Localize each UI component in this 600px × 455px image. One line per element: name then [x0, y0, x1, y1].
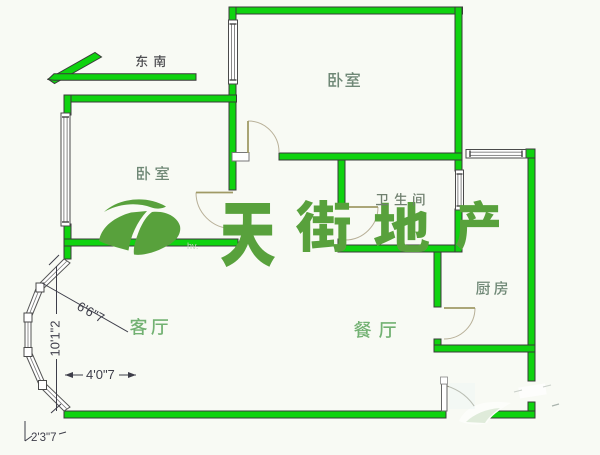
svg-text:hv.: hv.	[187, 241, 198, 251]
svg-text:2'3"7: 2'3"7	[31, 432, 56, 444]
svg-text:10'1"2: 10'1"2	[48, 320, 63, 356]
svg-text:4'0"7: 4'0"7	[86, 367, 115, 382]
